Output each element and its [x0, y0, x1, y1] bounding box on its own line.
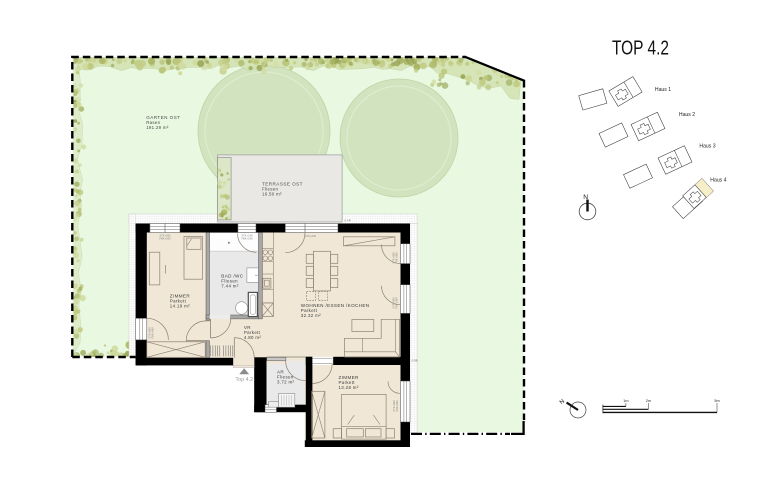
svg-text:FBK+245: FBK+245	[241, 237, 253, 241]
svg-text:FBK+090: FBK+090	[395, 400, 399, 412]
svg-text:4.80 m²: 4.80 m²	[244, 335, 262, 340]
svg-text:FBK+090: FBK+090	[395, 252, 399, 264]
svg-text:32.32 m²: 32.32 m²	[301, 313, 321, 318]
svg-text:STK+090: STK+090	[305, 234, 317, 238]
svg-text:14.19 m²: 14.19 m²	[170, 304, 190, 309]
svg-text:FBK+090: FBK+090	[395, 297, 399, 309]
svg-text:0.AR: 0.AR	[344, 219, 352, 223]
svg-text:16.50 m²: 16.50 m²	[262, 192, 282, 197]
svg-text:5m: 5m	[714, 399, 719, 403]
svg-text:0.98: 0.98	[412, 359, 418, 363]
svg-text:FBK+090: FBK+090	[159, 237, 171, 241]
svg-text:3.72 m²: 3.72 m²	[277, 380, 295, 385]
svg-text:1m: 1m	[623, 399, 628, 403]
svg-text:TOP 4.2: TOP 4.2	[612, 37, 669, 60]
svg-text:2m: 2m	[646, 399, 651, 403]
svg-text:Top 4.2: Top 4.2	[235, 377, 253, 383]
svg-text:N: N	[583, 194, 588, 201]
svg-text:FBK+090: FBK+090	[151, 327, 155, 339]
svg-text:Haus 2: Haus 2	[679, 112, 695, 118]
svg-text:Haus 1: Haus 1	[655, 87, 671, 93]
svg-text:Haus 3: Haus 3	[699, 144, 715, 150]
svg-text:Haus 4: Haus 4	[710, 178, 726, 184]
svg-text:7.44 m²: 7.44 m²	[221, 284, 239, 289]
svg-text:191.29 m²: 191.29 m²	[146, 125, 169, 130]
svg-text:13.28 m²: 13.28 m²	[339, 385, 359, 390]
